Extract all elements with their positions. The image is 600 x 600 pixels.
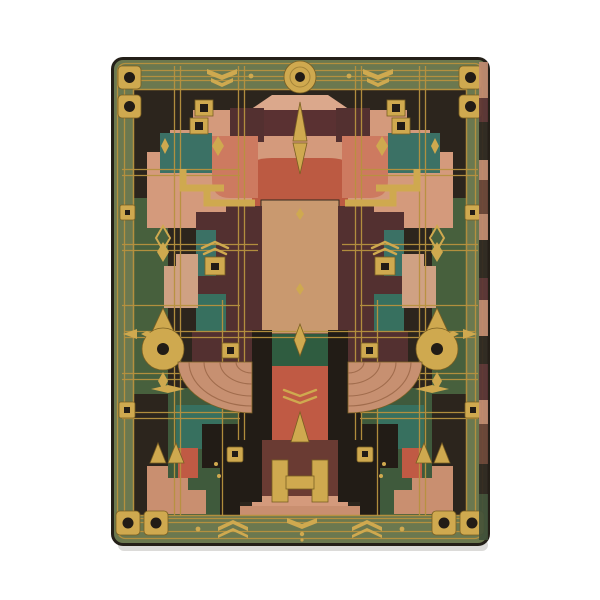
tiny-dot-a [214, 462, 218, 466]
base-step-lower [234, 506, 366, 516]
journal-cover-illustration [0, 0, 600, 600]
top-disc-hole [295, 72, 305, 82]
product-photo-stage [0, 0, 600, 600]
copper-panel [261, 200, 339, 334]
border-stud-square-upper [120, 205, 135, 220]
fan-strip-stud-square [222, 343, 239, 358]
journal-cover-photo [0, 0, 600, 600]
pendulum-disc-hole [157, 343, 169, 355]
lower-stud-square [227, 447, 243, 462]
tiny-dot-b [217, 474, 221, 478]
fore-edge-strip [479, 62, 488, 540]
upper-teal-patch [160, 133, 212, 173]
bottom-border-dot-1 [300, 532, 304, 536]
bottom-border-dot-2 [300, 538, 303, 541]
border-stud-square-lower [119, 402, 135, 418]
